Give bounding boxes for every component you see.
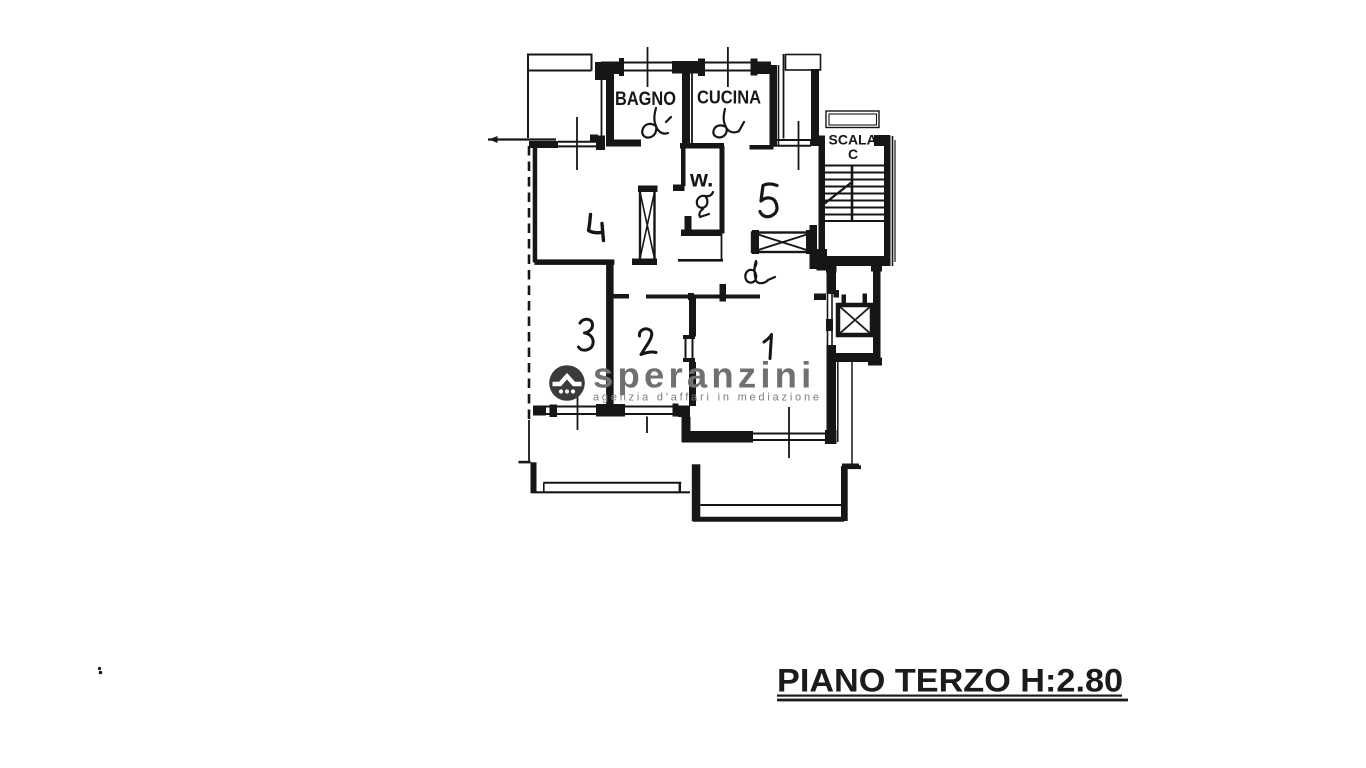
svg-text:CUCINA: CUCINA [697,88,761,108]
svg-text:BAGNO: BAGNO [615,89,676,110]
svg-text:PIANO TERZO H:2.80: PIANO TERZO H:2.80 [777,663,1123,699]
svg-text:speranzini: speranzini [593,355,816,396]
svg-text:w.: w. [689,166,713,192]
svg-text:C: C [848,146,858,162]
